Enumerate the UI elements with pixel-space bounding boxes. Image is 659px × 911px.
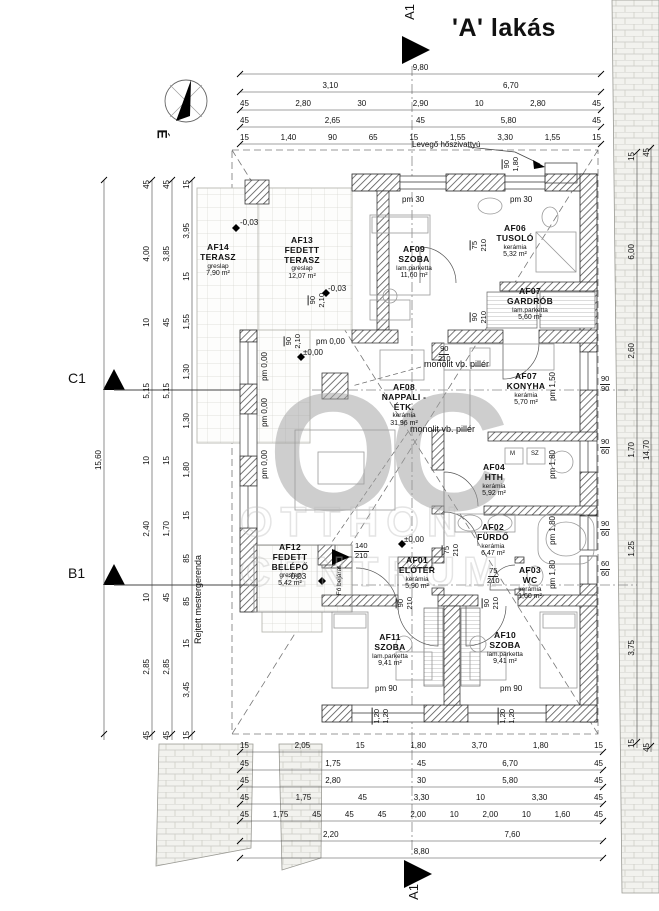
dim-value: 45	[594, 810, 603, 819]
pm90-a: pm 90	[375, 685, 397, 694]
dim-bottom-7: 8,80	[240, 846, 603, 856]
dim-value: 10	[522, 810, 531, 819]
room-label-furdo: AF02FÜRDŐ kerámia6,47 m²	[477, 523, 509, 558]
dim-value: 3,45	[182, 682, 191, 698]
dim-value: 2,00	[482, 810, 498, 819]
dim-value: 1,80	[533, 741, 549, 750]
dim-left-2: 454,00105,15102,40102,8545	[140, 180, 152, 740]
dim-value: 45	[378, 810, 387, 819]
dim-value: 15	[627, 739, 636, 748]
dryer-label: SZ	[531, 451, 539, 458]
dim-value: 15	[182, 272, 191, 281]
hidden-beam-label: Rejtett mestergerenda	[193, 555, 203, 644]
dim-value: 2,85	[142, 659, 151, 675]
opening-dim-wc-window: 6060	[600, 560, 610, 578]
dim-value: 5,15	[162, 383, 171, 399]
dim-value: 1,80	[512, 156, 521, 173]
dim-value: 2,60	[627, 343, 636, 359]
dim-value: 60	[600, 448, 610, 457]
dim-value: 45	[240, 793, 249, 802]
dim-value: 7,60	[504, 830, 520, 839]
dim-value: 3,70	[472, 741, 488, 750]
dim-value: 10	[142, 456, 151, 465]
dim-value: 9,80	[413, 63, 429, 72]
dim-value: 15	[627, 152, 636, 161]
dim-value: 45	[594, 776, 603, 785]
dim-value: 60	[600, 530, 610, 539]
opening-dim-furdo-door: 75210	[442, 543, 460, 558]
dim-value: 65	[369, 133, 378, 142]
opening-dim-szoba11-door: 90210	[396, 596, 414, 611]
dim-value: 45	[417, 759, 426, 768]
pm180-b: pm 1,80	[548, 516, 557, 545]
opening-dim-corridor: 90210	[437, 345, 452, 363]
dim-bottom-3: 452,80305,8045	[240, 775, 603, 785]
dim-value: 210	[437, 355, 452, 364]
pm90-b: pm 90	[500, 685, 522, 694]
room-label-wc: AF03WC kerámia1,60 m²	[518, 566, 542, 601]
dim-value: 15,60	[94, 450, 103, 470]
level-label-zero-a: ±0,00	[303, 349, 323, 358]
dim-value: 45	[162, 731, 171, 740]
dim-value: 10	[142, 593, 151, 602]
dim-value: 45	[594, 759, 603, 768]
dim-value: 1,70	[162, 521, 171, 537]
dim-left-4: 153,95151,551,301,301,80158585153,4515	[180, 180, 192, 740]
dim-value: 15	[356, 741, 365, 750]
dim-value: 15	[182, 731, 191, 740]
dim-value: 1,55	[450, 133, 466, 142]
dim-top-2: 3,106,70	[240, 80, 601, 90]
pillar-label-1: monolit vb. pillér	[424, 360, 489, 370]
dim-value: 30	[417, 776, 426, 785]
level-label-neg-b: -0,03	[328, 285, 346, 294]
dim-value: 15	[182, 639, 191, 648]
dim-value: 2,65	[325, 116, 341, 125]
level-label-neg-a: -0,03	[240, 219, 258, 228]
dim-top-4: 452,65455,8045	[240, 115, 601, 125]
dim-value: 45	[162, 593, 171, 602]
dim-value: 3,30	[532, 793, 548, 802]
dim-value: 210	[480, 238, 489, 253]
room-label-eloter: AF01ELŐTÉR kerámia5,90 m²	[399, 556, 435, 591]
pm30-b: pm 30	[510, 196, 532, 205]
dim-value: 15	[240, 133, 249, 142]
dim-value: 45	[240, 810, 249, 819]
main-entrance-label: Fő bejárat	[336, 566, 343, 595]
dim-value: 10	[475, 99, 484, 108]
dim-value: 15	[240, 741, 249, 750]
dim-value: 85	[182, 597, 191, 606]
dim-value: 3,95	[182, 223, 191, 239]
dim-value: 14,70	[642, 440, 651, 460]
watermark-text-1: OTTHON	[240, 498, 465, 546]
dim-value: 3,30	[497, 133, 513, 142]
dim-value: 45	[642, 743, 651, 752]
dim-value: 3,85	[162, 246, 171, 262]
dim-left-1: 15,60	[92, 180, 104, 740]
dim-value: 15	[594, 741, 603, 750]
dim-value: 45	[162, 180, 171, 189]
pillar-label-2: monolit vb. pillér	[410, 425, 475, 435]
dim-value: 6,70	[503, 81, 519, 90]
dim-value: 15	[409, 133, 418, 142]
washer-label: M	[510, 451, 515, 458]
room-label-konyha: AF07KONYHA kerámia5,70 m²	[507, 372, 546, 407]
dim-bottom-6: 2,207,60	[240, 829, 603, 839]
opening-dim-szoba10-window: 1,201,20	[498, 708, 516, 725]
dim-value: 210	[480, 310, 489, 325]
dim-value: 1,75	[273, 810, 289, 819]
opening-dim-heatpump-window: 901,80	[502, 156, 520, 173]
dim-value: 1,20	[508, 708, 517, 725]
opening-dim-szoba11-window: 1,201,20	[372, 708, 390, 725]
dim-value: 45	[142, 180, 151, 189]
opening-dim-tusolo-door: 75210	[470, 238, 488, 253]
dim-value: 2,05	[295, 741, 311, 750]
dim-value: 2,10	[318, 292, 327, 309]
dim-value: 45	[592, 116, 601, 125]
opening-dim-terrace-door-2: 902,10	[284, 333, 302, 350]
dim-value: 90	[600, 385, 610, 394]
opening-dim-hth-window: 9060	[600, 438, 610, 456]
room-label-szoba-af10: AF10SZOBA lam.parketta9,41 m²	[487, 631, 523, 666]
dim-value: 1,70	[627, 442, 636, 458]
dim-bottom-5: 451,754545452,00102,00101,6045	[240, 809, 603, 819]
dim-value: 45	[240, 99, 249, 108]
room-label-szoba-af09: AF09SZOBA lam.parketta11,60 m²	[396, 245, 432, 280]
north-compass	[165, 80, 207, 122]
pm30-a: pm 30	[402, 196, 424, 205]
dim-value: 45	[592, 99, 601, 108]
dim-value: 45	[142, 731, 151, 740]
opening-dim-front-door: 140210	[354, 542, 369, 560]
north-label: É	[155, 129, 171, 138]
dim-top-1: 9,80	[240, 62, 601, 72]
pm000-b: pm 0,00	[260, 398, 269, 427]
room-label-nappali: AF08NAPPALI - ÉTK. kerámia31,96 m²	[376, 383, 432, 428]
dim-value: 2,40	[142, 521, 151, 537]
dim-value: 8,80	[414, 847, 430, 856]
dim-value: 15	[162, 456, 171, 465]
dim-value: 1,60	[555, 810, 571, 819]
dim-top-5: 151,409065151,553,301,5515	[240, 132, 601, 142]
room-label-terasz: AF14TERASZ greslap7,90 m²	[200, 243, 236, 278]
dim-value: 2,10	[294, 333, 303, 350]
dim-value: 45	[358, 793, 367, 802]
dim-value: 2,85	[162, 659, 171, 675]
dim-value: 2,80	[295, 99, 311, 108]
dim-value: 6,00	[627, 244, 636, 260]
dim-right-1: 156,002,601,701,253,7515	[625, 152, 637, 748]
dim-value: 2,80	[325, 776, 341, 785]
dim-value: 45	[416, 116, 425, 125]
dim-value: 1,55	[545, 133, 561, 142]
dim-value: 60	[600, 570, 610, 579]
dim-value: 1,20	[382, 708, 391, 725]
dim-value: 1,80	[182, 462, 191, 478]
pm000-d: pm 0,00	[316, 338, 345, 347]
heat-pump-arrowhead	[533, 160, 545, 169]
section-marker-a1-bottom: A1	[406, 884, 421, 900]
dim-right-2: 4514,7045	[640, 148, 652, 752]
dim-value: 2,00	[410, 810, 426, 819]
dim-bottom-4: 451,75453,30103,3045	[240, 792, 603, 802]
dim-value: 210	[486, 577, 501, 586]
pm150: pm 1,50	[548, 372, 557, 401]
room-label-szoba-af11: AF11SZOBA lam.parketta9,41 m²	[372, 633, 408, 668]
opening-dim-wc-door: 75210	[486, 567, 501, 585]
dim-value: 45	[642, 148, 651, 157]
dim-value: 15	[182, 511, 191, 520]
opening-dim-terrace-door-1: 902,10	[308, 292, 326, 309]
pm180-a: pm 1,80	[548, 450, 557, 479]
dim-value: 1,75	[325, 759, 341, 768]
dim-value: 45	[240, 759, 249, 768]
dim-value: 45	[240, 776, 249, 785]
room-label-fedett-terasz: AF13FEDETT TERASZ greslap12,07 m²	[269, 236, 335, 281]
pm000-c: pm 0,00	[260, 450, 269, 479]
section-marker-c1: C1	[68, 370, 86, 386]
dim-value: 90	[328, 133, 337, 142]
dim-value: 1,25	[627, 541, 636, 557]
dim-value: 2,20	[323, 830, 339, 839]
dim-value: 45	[162, 318, 171, 327]
dim-value: 45	[345, 810, 354, 819]
dim-value: 1,40	[281, 133, 297, 142]
pm000-a: pm 0,00	[260, 352, 269, 381]
dim-value: 210	[492, 596, 501, 611]
floorplan-canvas: OC OTTHON CENTRUM 'A' lakás A1 A1 C1 B1 …	[0, 0, 659, 911]
opening-dim-furdo-window: 9060	[600, 520, 610, 538]
dim-bottom-1: 152,05151,803,701,8015	[240, 740, 603, 750]
dim-value: 1,80	[410, 741, 426, 750]
dim-value: 10	[142, 318, 151, 327]
opening-dim-gardrob-door: 90210	[470, 310, 488, 325]
dim-value: 5,80	[501, 116, 517, 125]
opening-dim-szoba10-door: 90210	[482, 596, 500, 611]
dim-value: 15	[182, 180, 191, 189]
dim-value: 1,30	[182, 364, 191, 380]
dim-value: 1,75	[296, 793, 312, 802]
dim-value: 45	[312, 810, 321, 819]
section-marker-b1: B1	[68, 565, 85, 581]
dim-value: 30	[357, 99, 366, 108]
dim-value: 45	[240, 116, 249, 125]
page-title: 'A' lakás	[452, 14, 556, 43]
heat-pump-label: Levegő hőszivattyú	[412, 141, 481, 150]
dim-value: 5,15	[142, 383, 151, 399]
dim-value: 210	[452, 543, 461, 558]
room-label-hth: AF04HTH kerámia5,92 m²	[482, 463, 506, 498]
dim-bottom-2: 451,75456,7045	[240, 758, 603, 768]
dim-value: 2,80	[530, 99, 546, 108]
pm180-c: pm 1,80	[548, 560, 557, 589]
section-marker-a1-top: A1	[402, 4, 417, 20]
dim-value: 1,30	[182, 413, 191, 429]
dim-value: 3,30	[414, 793, 430, 802]
dim-value: 45	[594, 793, 603, 802]
dim-value: 3,10	[322, 81, 338, 90]
dim-top-3: 452,80302,90102,8045	[240, 98, 601, 108]
room-label-tusolo: AF06TUSOLÓ kerámia5,32 m²	[496, 224, 533, 259]
level-label-neg-c: -0,03	[288, 573, 306, 582]
opening-dim-konyha-window: 9090	[600, 375, 610, 393]
dim-value: 15	[592, 133, 601, 142]
room-label-gardrob: AF07GARDRÓB lam.parketta5,60 m²	[507, 287, 553, 322]
dim-value: 6,70	[502, 759, 518, 768]
dim-value: 2,90	[413, 99, 429, 108]
level-label-zero-b: ±0,00	[404, 536, 424, 545]
dim-value: 210	[354, 552, 369, 561]
dim-value: 3,75	[627, 640, 636, 656]
dim-value: 5,80	[502, 776, 518, 785]
dim-value: 210	[406, 596, 415, 611]
dim-value: 1,55	[182, 314, 191, 330]
dim-value: 10	[450, 810, 459, 819]
dim-value: 85	[182, 554, 191, 563]
dim-left-3: 453,85455,15151,70452,8545	[160, 180, 172, 740]
dim-value: 10	[476, 793, 485, 802]
dim-value: 4,00	[142, 246, 151, 262]
